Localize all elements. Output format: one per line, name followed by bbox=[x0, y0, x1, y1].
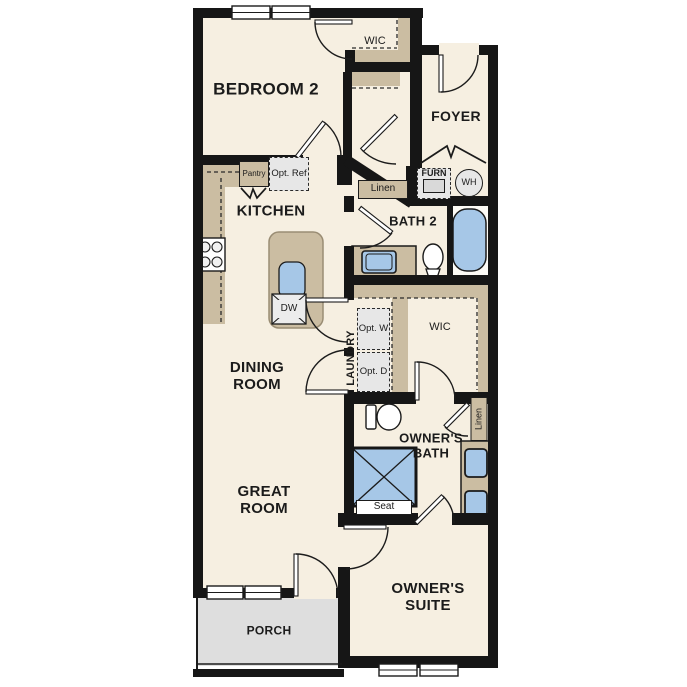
water-heater-circle: WH bbox=[455, 169, 483, 197]
bathtub bbox=[453, 209, 486, 271]
owners-toilet bbox=[366, 405, 376, 429]
room-label-owners-suite: OWNER'S SUITE bbox=[378, 581, 478, 615]
furnace-unit bbox=[423, 179, 445, 193]
pantry-box: Pantry bbox=[239, 161, 269, 187]
opt-washer-box: Opt. W bbox=[357, 308, 390, 350]
linen-owners-box: Linen bbox=[471, 397, 488, 441]
room-label-great-room: GREAT ROOM bbox=[224, 484, 304, 518]
room-label-dining: DINING ROOM bbox=[212, 360, 302, 394]
floor-plan: BEDROOM 2 WIC FOYER KITCHEN BATH 2 DININ… bbox=[0, 0, 687, 687]
room-label-wic-middle: WIC bbox=[429, 321, 450, 333]
room-label-kitchen: KITCHEN bbox=[237, 204, 306, 221]
room-label-bedroom2: BEDROOM 2 bbox=[186, 79, 346, 98]
shower-seat-box: Seat bbox=[356, 500, 412, 515]
room-label-owners-bath: OWNER'S BATH bbox=[386, 431, 476, 460]
room-label-bath2: BATH 2 bbox=[378, 215, 448, 230]
linen-upper-box: Linen bbox=[358, 180, 408, 199]
room-label-laundry: LAUNDRY bbox=[345, 323, 357, 393]
dishwasher-label: DW bbox=[276, 300, 302, 318]
floor-plan-drawing bbox=[0, 0, 687, 687]
opt-dryer-box: Opt. D bbox=[357, 352, 390, 392]
bath2-toilet bbox=[423, 244, 443, 270]
furnace-box: FURN bbox=[417, 168, 451, 199]
island-sink bbox=[279, 262, 305, 298]
opt-ref-box: Opt. Ref bbox=[269, 157, 309, 191]
room-label-wic-upper: WIC bbox=[364, 35, 385, 47]
room-label-porch: PORCH bbox=[247, 624, 292, 637]
room-label-foyer: FOYER bbox=[431, 109, 481, 125]
furnace-label: FURN bbox=[422, 169, 447, 178]
